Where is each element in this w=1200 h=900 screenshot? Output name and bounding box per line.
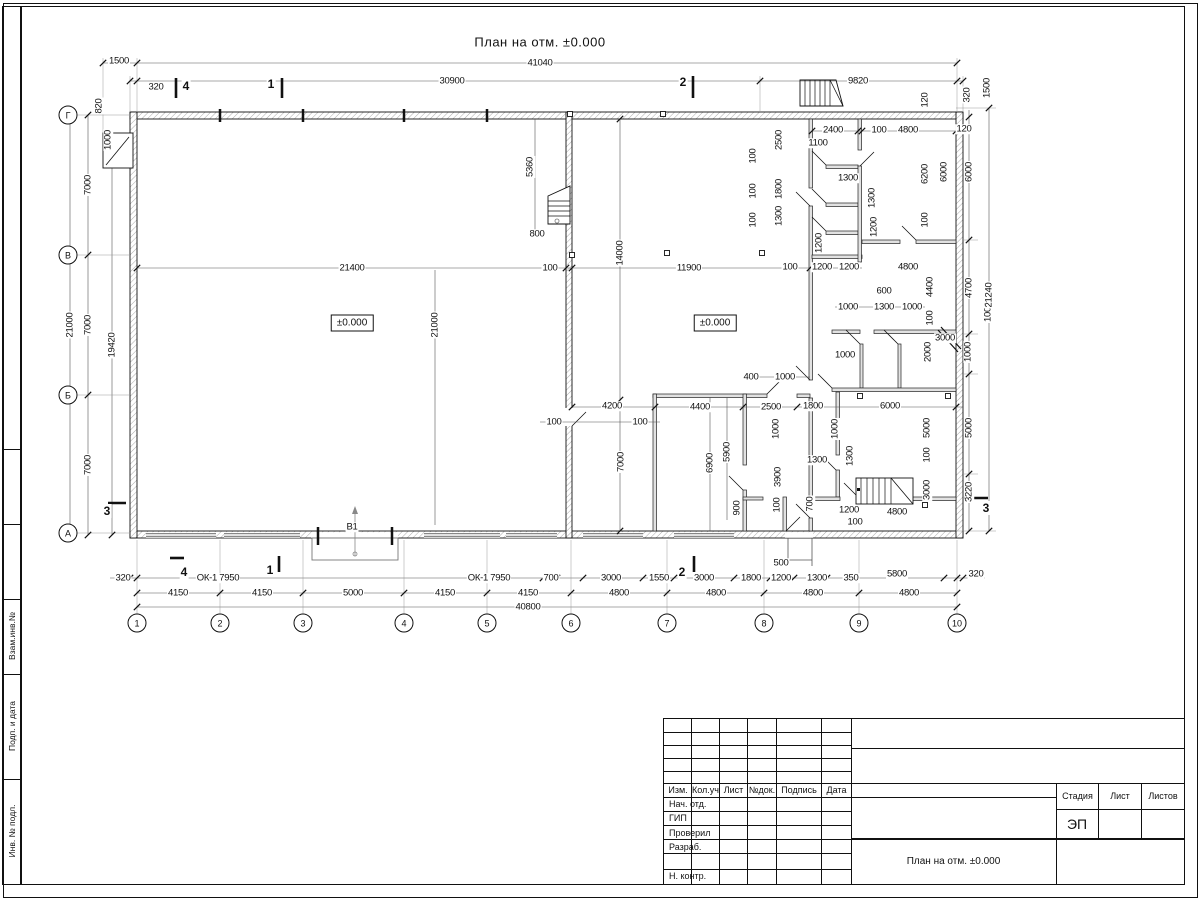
titleblock-cell: Листов bbox=[1142, 783, 1184, 809]
dim-label: 600 bbox=[876, 286, 893, 296]
dim-label: 9820 bbox=[847, 76, 869, 86]
dim-label: 3000 bbox=[693, 573, 715, 583]
dim-label: 5000 bbox=[342, 588, 364, 598]
dim-label: 5360 bbox=[525, 156, 535, 178]
dim-label: 3220 bbox=[964, 481, 974, 503]
axis-bubble-А: А bbox=[59, 524, 78, 543]
dim-label: 320 bbox=[115, 573, 132, 583]
dim-label: 4800 bbox=[802, 588, 824, 598]
dim-label: 100 bbox=[925, 310, 935, 327]
titleblock-stage-value: ЭП bbox=[1056, 809, 1098, 838]
dim-label: 1000 bbox=[834, 350, 856, 360]
section-mark-1: 1 bbox=[267, 77, 276, 91]
dim-label: 11900 bbox=[676, 263, 702, 273]
dim-label: 900 bbox=[732, 500, 742, 517]
dim-label: 1300 bbox=[806, 455, 828, 465]
titleblock-cell: №док. bbox=[748, 783, 776, 797]
section-mark-2: 2 bbox=[679, 75, 688, 89]
level-mark: ±0.000 bbox=[694, 315, 737, 332]
dim-label: 1300 bbox=[774, 205, 784, 227]
dim-label: 2500 bbox=[774, 129, 784, 151]
drawing-sheet: Взам.инв.№Подп. и датаИнв. № подл. 41040… bbox=[0, 0, 1200, 900]
axis-bubble-2: 2 bbox=[211, 614, 230, 633]
dim-label: 21240 bbox=[984, 282, 994, 309]
dim-label: 21000 bbox=[430, 312, 440, 339]
dim-label: 1300 bbox=[873, 302, 895, 312]
axis-bubble-В: В bbox=[59, 246, 78, 265]
axis-bubble-7: 7 bbox=[658, 614, 677, 633]
titleblock-line bbox=[664, 839, 1184, 840]
dim-label: 100 bbox=[546, 417, 563, 427]
titleblock-line bbox=[664, 745, 851, 746]
dim-label: 3000 bbox=[600, 573, 622, 583]
dim-label: 1300 bbox=[806, 573, 828, 583]
dim-label: 3900 bbox=[773, 466, 783, 488]
dim-label: 100 bbox=[920, 212, 930, 229]
titleblock-cell: Изм. bbox=[665, 783, 691, 797]
dim-label: 320 bbox=[962, 87, 972, 104]
dim-label: 1000 bbox=[963, 341, 973, 363]
dim-label: 1000 bbox=[901, 302, 923, 312]
titleblock-cell: Лист bbox=[720, 783, 747, 797]
titleblock-cell: Стадия bbox=[1057, 783, 1098, 809]
dim-label: 1000 bbox=[771, 418, 781, 440]
level-mark: ±0.000 bbox=[331, 315, 374, 332]
dim-label: 7000 bbox=[83, 174, 93, 196]
dim-label: 100 bbox=[748, 212, 758, 229]
titleblock-line bbox=[851, 719, 852, 884]
dim-label: 1550 bbox=[648, 573, 670, 583]
dim-label: 4400 bbox=[689, 402, 711, 412]
section-mark-4: 4 bbox=[182, 79, 191, 93]
dim-label: 4800 bbox=[886, 507, 908, 517]
dim-label: 820 bbox=[94, 98, 104, 115]
dim-label: 4700 bbox=[964, 277, 974, 299]
dim-label: ОК-1 7950 bbox=[467, 573, 511, 583]
dim-label: 4150 bbox=[251, 588, 273, 598]
titleblock-line bbox=[851, 748, 1184, 749]
axis-bubble-10: 10 bbox=[948, 614, 967, 633]
dim-label: 1300 bbox=[845, 445, 855, 467]
dim-label: 19420 bbox=[107, 332, 117, 359]
dim-label: 21000 bbox=[65, 312, 75, 339]
titleblock-cell: Проверил bbox=[666, 826, 723, 840]
titleblock-line bbox=[664, 771, 851, 772]
dim-label: 3000 bbox=[922, 479, 932, 501]
titleblock-cell: Кол.уч bbox=[692, 783, 719, 797]
axis-bubble-4: 4 bbox=[395, 614, 414, 633]
dim-label: 400 bbox=[743, 372, 760, 382]
section-mark-3: 3 bbox=[103, 504, 112, 518]
dim-label: 1000 bbox=[103, 129, 113, 151]
dim-label: 4800 bbox=[705, 588, 727, 598]
dim-label: 30900 bbox=[439, 76, 466, 86]
title-block: План на отм. ±0.000 ЭП Изм.Кол.учЛист№до… bbox=[663, 718, 1185, 885]
dim-label: 7000 bbox=[83, 314, 93, 336]
titleblock-line bbox=[664, 732, 851, 733]
titleblock-line bbox=[851, 838, 1184, 839]
dim-label: 800 bbox=[529, 229, 546, 239]
dim-label: 100 bbox=[847, 517, 864, 527]
dim-label: 4800 bbox=[898, 588, 920, 598]
dim-label: 1500 bbox=[982, 77, 992, 99]
dim-label: 320 bbox=[968, 569, 985, 579]
axis-bubble-3: 3 bbox=[294, 614, 313, 633]
dim-label: 1000 bbox=[830, 418, 840, 440]
page-title: План на отм. ±0.000 bbox=[472, 35, 607, 50]
dim-label: 1200 bbox=[838, 262, 860, 272]
dim-label: 2500 bbox=[760, 402, 782, 412]
dim-label: 2000 bbox=[923, 341, 933, 363]
dim-label: 5000 bbox=[964, 417, 974, 439]
titleblock-cell bbox=[666, 855, 723, 869]
titleblock-cell: Подпись bbox=[777, 783, 821, 797]
dim-label: 3000 bbox=[934, 333, 956, 343]
dim-label: 6200 bbox=[920, 163, 930, 185]
dim-label: 700 bbox=[543, 573, 560, 583]
dim-label: 4800 bbox=[897, 125, 919, 135]
axis-bubble-6: 6 bbox=[562, 614, 581, 633]
titleblock-cell: Нач. отд. bbox=[666, 797, 723, 811]
titleblock-cell: ГИП bbox=[666, 811, 723, 825]
axis-bubble-5: 5 bbox=[478, 614, 497, 633]
dim-label: 5000 bbox=[922, 417, 932, 439]
dim-label: 1200 bbox=[814, 232, 824, 254]
dim-label: 100 bbox=[922, 447, 932, 464]
section-mark-3: 3 bbox=[982, 501, 991, 515]
dim-label: 7000 bbox=[83, 454, 93, 476]
dim-label: 120 bbox=[956, 124, 973, 134]
dim-label: 1800 bbox=[802, 401, 824, 411]
dim-label: 1200 bbox=[770, 573, 792, 583]
dim-label: 320 bbox=[148, 82, 165, 92]
dim-label: 500 bbox=[773, 558, 790, 568]
titleblock-cell: Дата bbox=[822, 783, 851, 797]
dim-label: 7000 bbox=[616, 451, 626, 473]
axis-bubble-8: 8 bbox=[755, 614, 774, 633]
dim-label: 4150 bbox=[167, 588, 189, 598]
dim-label: 1000 bbox=[774, 372, 796, 382]
dim-label: 4200 bbox=[601, 401, 623, 411]
section-mark-2: 2 bbox=[678, 565, 687, 579]
axis-bubble-1: 1 bbox=[128, 614, 147, 633]
dim-label: ОК-1 7950 bbox=[196, 573, 240, 583]
dim-label: 41040 bbox=[527, 58, 554, 68]
dim-label: 100 bbox=[871, 125, 888, 135]
dim-label: 100 bbox=[748, 183, 758, 200]
dim-label: 5800 bbox=[886, 569, 908, 579]
dim-label: 40800 bbox=[515, 602, 542, 612]
dim-label: 100 bbox=[772, 497, 782, 514]
dim-label: 1100 bbox=[807, 138, 828, 148]
dim-label: 6000 bbox=[939, 161, 949, 183]
dim-label: 700 bbox=[805, 496, 815, 513]
dim-label: 4800 bbox=[897, 262, 919, 272]
dim-label: 14000 bbox=[615, 240, 625, 267]
dim-label: 100 bbox=[632, 417, 649, 427]
dim-label: 1800 bbox=[740, 573, 762, 583]
dim-label: 5900 bbox=[722, 441, 732, 463]
section-mark-4: 4 bbox=[180, 565, 189, 579]
axis-bubble-Г: Г bbox=[59, 106, 78, 125]
dim-label: 100 bbox=[542, 263, 559, 273]
dim-label: 4400 bbox=[925, 276, 935, 298]
dim-label: 1300 bbox=[837, 173, 859, 183]
dim-label: 4800 bbox=[608, 588, 630, 598]
titleblock-line bbox=[1056, 809, 1184, 810]
titleblock-cell: Н. контр. bbox=[666, 869, 723, 883]
section-mark-1: 1 bbox=[266, 563, 275, 577]
dim-label: 1800 bbox=[774, 178, 784, 200]
dim-label: 4150 bbox=[434, 588, 456, 598]
titleblock-cell: Лист bbox=[1099, 783, 1141, 809]
axis-bubble-Б: Б bbox=[59, 386, 78, 405]
dim-label: 1300 bbox=[867, 187, 877, 209]
dim-label: 1200 bbox=[838, 505, 860, 515]
titleblock-line bbox=[747, 719, 748, 884]
dim-label: 6000 bbox=[964, 161, 974, 183]
dim-label: 6000 bbox=[879, 401, 901, 411]
titleblock-line bbox=[776, 719, 777, 884]
titleblock-line bbox=[821, 719, 822, 884]
dim-label: 100 bbox=[782, 262, 799, 272]
dim-label: 350 bbox=[843, 573, 860, 583]
dim-label: 100 bbox=[748, 148, 758, 165]
titleblock-line bbox=[664, 758, 851, 759]
dim-label: 6900 bbox=[705, 452, 715, 474]
dim-label: 1500 bbox=[108, 56, 130, 66]
dim-label: 1200 bbox=[811, 262, 833, 272]
dim-label: В1 bbox=[345, 522, 358, 532]
titleblock-cell: Разраб. bbox=[666, 840, 723, 854]
dim-label: 2400 bbox=[822, 125, 844, 135]
dim-label: 120 bbox=[920, 92, 930, 109]
dim-label: 1000 bbox=[837, 302, 859, 312]
titleblock-doc-name: План на отм. ±0.000 bbox=[851, 838, 1056, 884]
dim-label: 21400 bbox=[339, 263, 366, 273]
axis-bubble-9: 9 bbox=[850, 614, 869, 633]
dim-label: 4150 bbox=[517, 588, 539, 598]
dim-label: 1200 bbox=[869, 216, 879, 238]
